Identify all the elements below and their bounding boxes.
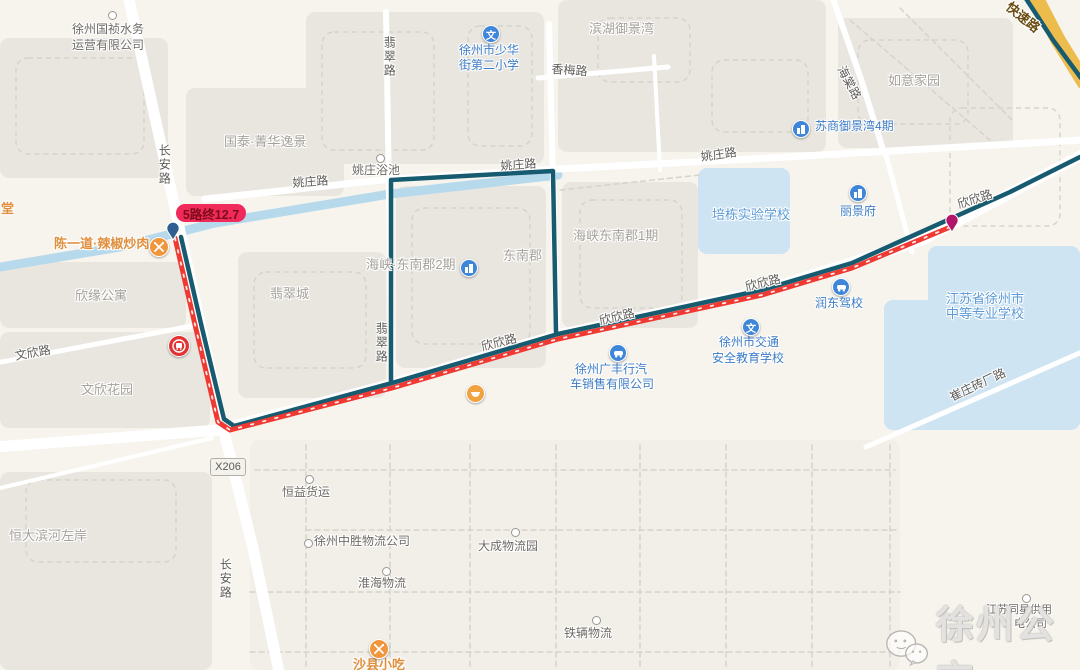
dot-icon — [592, 616, 601, 625]
map-label: 恒益货运 — [282, 486, 330, 499]
map-label: 丽景府 — [840, 205, 876, 218]
map-label: 铁辆物流 — [564, 627, 612, 640]
map-label: 滨湖御景湾 — [589, 22, 654, 36]
city-block — [0, 472, 212, 670]
dot-icon — [304, 539, 313, 548]
map-label: 徐州市交通 — [719, 336, 779, 349]
road-number-badge: X206 — [210, 458, 246, 476]
map-label: 润东驾校 — [815, 297, 863, 310]
map-canvas — [0, 0, 1080, 670]
map-label: 长安路 — [218, 558, 231, 600]
dot-icon — [511, 528, 520, 537]
route-distance-badge[interactable]: 5路终12.7 — [176, 204, 246, 222]
map-label: 长安路 — [157, 144, 170, 186]
map-label: 姚庄浴池 — [352, 164, 400, 177]
map-label: 大成物流园 — [478, 540, 538, 553]
food-icon[interactable] — [466, 384, 485, 403]
map-label: 中等专业学校 — [946, 307, 1024, 321]
building-icon[interactable] — [792, 120, 810, 138]
dot-icon — [108, 11, 117, 20]
map-label: 翡翠城 — [270, 287, 309, 301]
map-label: 国泰·菁华逸景 — [224, 135, 306, 149]
city-block — [306, 12, 544, 164]
map-label: 姚庄路 — [292, 174, 329, 190]
car-icon[interactable] — [832, 278, 850, 296]
bus-icon[interactable] — [168, 335, 190, 357]
school-icon[interactable]: 文 — [482, 25, 500, 43]
map-label: 江苏省徐州市 — [946, 292, 1024, 306]
restaurant-icon[interactable] — [149, 237, 169, 257]
map-label: 翡翠路 — [374, 322, 387, 364]
map-label: 车销售有限公司 — [570, 378, 654, 391]
map-label: 徐州国祯水务 — [72, 23, 144, 36]
restaurant-icon[interactable] — [369, 639, 389, 659]
map-label: 堂 — [1, 202, 14, 216]
dot-icon — [376, 154, 385, 163]
map-label: 文欣花园 — [81, 383, 133, 397]
building-icon[interactable] — [849, 184, 867, 202]
watermark-text: 徐州公交 — [936, 594, 1080, 670]
map-label: 香梅路 — [551, 63, 588, 79]
map-label: 如意家园 — [888, 74, 940, 88]
map-viewport[interactable]: 长安路长安路翡翠路翡翠路姚庄路姚庄路姚庄路香梅路海棠路文欣路欣欣路欣欣路欣欣路欣… — [0, 0, 1080, 670]
car-icon[interactable] — [609, 344, 627, 362]
map-label: 陈一道·辣椒炒肉 — [54, 237, 149, 251]
map-label: 安全教育学校 — [712, 352, 784, 365]
watermark: 徐州公交 — [885, 594, 1080, 670]
map-label: 海峡东南郡1期 — [573, 229, 658, 243]
map-label: 恒大滨河左岸 — [9, 529, 87, 543]
wechat-icon — [885, 625, 932, 670]
map-label: 运营有限公司 — [72, 39, 144, 52]
map-label: 淮海物流 — [358, 577, 406, 590]
map-label: 苏商御景湾4期 — [815, 120, 894, 133]
map-label: 徐州中胜物流公司 — [314, 535, 410, 548]
dot-icon — [382, 567, 391, 576]
map-label: 街第二小学 — [459, 59, 519, 72]
map-label: 海峡·东南郡2期 — [366, 258, 456, 272]
map-label: 东南郡 — [503, 249, 542, 263]
map-label: 徐州广丰行汽 — [575, 363, 647, 376]
map-label: 姚庄路 — [500, 157, 537, 173]
map-label: 沙县小吃 — [353, 658, 405, 670]
map-label: 欣缘公寓 — [75, 289, 127, 303]
map-label: 培栋实验学校 — [712, 208, 790, 222]
school-icon[interactable]: 文 — [742, 318, 760, 336]
map-label: 徐州市少华 — [459, 44, 519, 57]
map-label: 翡翠路 — [382, 36, 395, 78]
building-icon[interactable] — [460, 259, 478, 277]
dot-icon — [305, 475, 314, 484]
